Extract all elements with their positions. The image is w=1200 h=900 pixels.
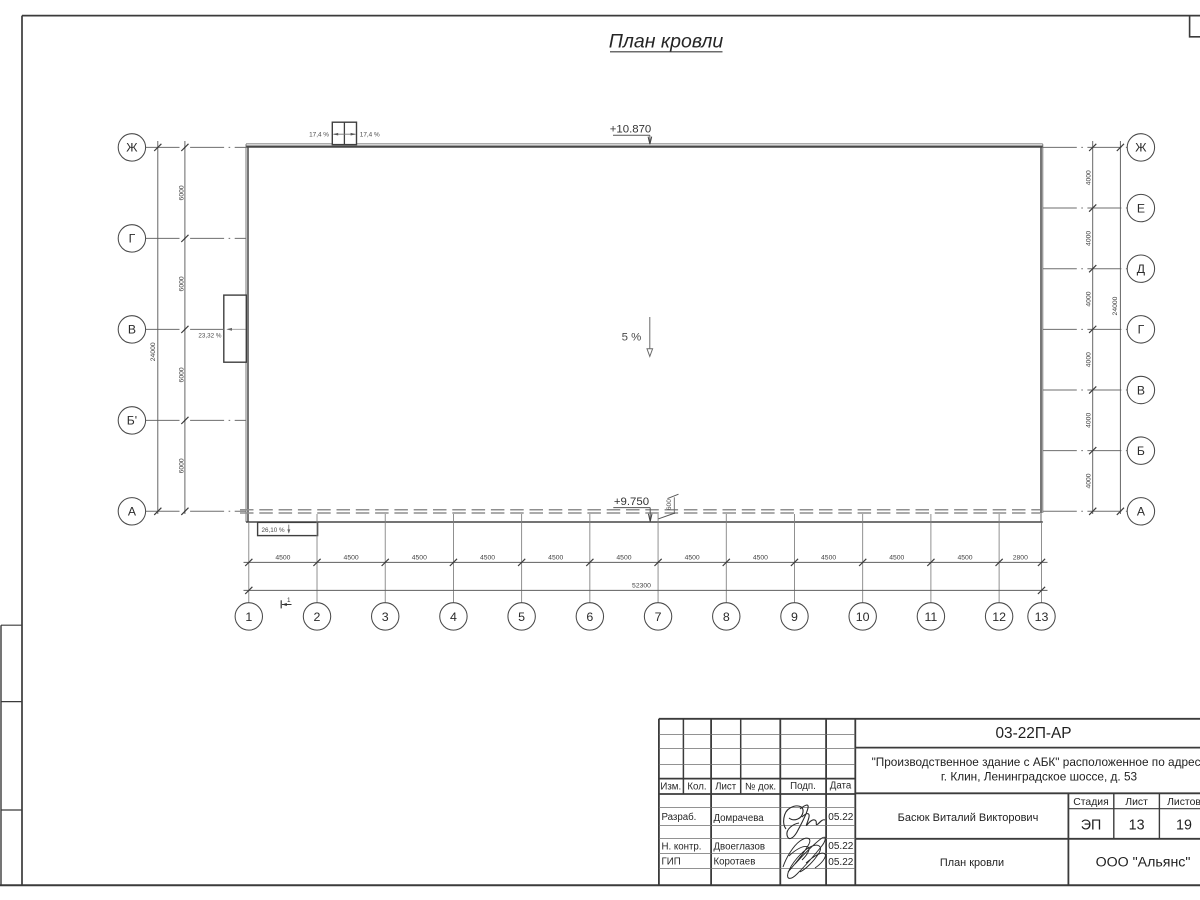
svg-text:4000: 4000 — [1086, 413, 1093, 428]
svg-text:24000: 24000 — [1112, 296, 1119, 315]
svg-text:11: 11 — [924, 610, 937, 624]
svg-text:6000: 6000 — [178, 367, 185, 382]
svg-text:17,4 %: 17,4 % — [360, 132, 380, 139]
svg-text:Двоеглазов: Двоеглазов — [714, 841, 766, 852]
svg-text:4500: 4500 — [480, 554, 495, 561]
svg-text:4000: 4000 — [1086, 352, 1093, 367]
svg-text:8: 8 — [723, 610, 730, 624]
svg-text:Лист: Лист — [715, 781, 737, 792]
svg-text:4500: 4500 — [344, 554, 359, 561]
svg-text:А: А — [1137, 505, 1146, 519]
svg-text:600: 600 — [666, 499, 673, 510]
svg-text:Лист: Лист — [1125, 797, 1148, 808]
svg-text:4500: 4500 — [889, 554, 904, 561]
svg-text:1: 1 — [245, 610, 252, 624]
svg-text:2: 2 — [314, 610, 321, 624]
svg-text:4500: 4500 — [548, 554, 563, 561]
svg-text:13: 13 — [1035, 610, 1049, 624]
svg-text:05.22: 05.22 — [828, 841, 853, 852]
svg-text:6000: 6000 — [178, 276, 185, 291]
svg-text:4000: 4000 — [1086, 170, 1093, 185]
svg-text:Г: Г — [129, 232, 136, 246]
svg-text:Ж: Ж — [126, 141, 138, 155]
svg-text:4: 4 — [450, 610, 457, 624]
svg-text:Б: Б — [1137, 444, 1145, 458]
svg-text:4000: 4000 — [1086, 291, 1093, 306]
svg-text:5 %: 5 % — [622, 332, 642, 344]
svg-text:Изм.: Изм. — [660, 781, 681, 792]
svg-text:03-22П-АР: 03-22П-АР — [995, 725, 1071, 742]
svg-text:6000: 6000 — [178, 458, 185, 473]
svg-text:Коротаев: Коротаев — [714, 856, 756, 867]
svg-text:Дата: Дата — [830, 780, 852, 791]
svg-text:24000: 24000 — [150, 342, 157, 361]
svg-text:В: В — [1137, 383, 1145, 397]
svg-text:6000: 6000 — [178, 185, 185, 200]
svg-text:4500: 4500 — [753, 554, 768, 561]
svg-text:Д: Д — [1137, 262, 1146, 276]
svg-text:г. Клин, Ленинградское шоссе,: г. Клин, Ленинградское шоссе, д. 53 — [941, 769, 1138, 783]
svg-text:19: 19 — [1176, 818, 1192, 834]
svg-text:4500: 4500 — [616, 554, 631, 561]
svg-text:Разраб.: Разраб. — [662, 812, 697, 823]
svg-text:Ж: Ж — [1135, 141, 1147, 155]
svg-text:26,10 %: 26,10 % — [262, 527, 286, 534]
svg-text:ГИП: ГИП — [662, 856, 681, 867]
svg-text:10: 10 — [856, 610, 870, 624]
svg-text:9: 9 — [791, 610, 798, 624]
svg-text:План кровли: План кровли — [940, 857, 1004, 869]
svg-text:4500: 4500 — [821, 554, 836, 561]
svg-text:"Производственное здание с АБК: "Производственное здание с АБК" располож… — [872, 755, 1200, 769]
svg-text:Домрачева: Домрачева — [714, 813, 765, 824]
svg-text:+9.750: +9.750 — [614, 496, 649, 508]
svg-text:5: 5 — [518, 610, 525, 624]
svg-text:Е: Е — [1137, 201, 1145, 215]
svg-text:6: 6 — [586, 610, 593, 624]
svg-text:ЭП: ЭП — [1081, 818, 1102, 834]
svg-text:4500: 4500 — [412, 554, 427, 561]
svg-text:План кровли: План кровли — [609, 30, 724, 52]
svg-text:17,4 %: 17,4 % — [309, 132, 329, 139]
svg-text:2800: 2800 — [1013, 554, 1028, 561]
svg-text:4500: 4500 — [685, 554, 700, 561]
svg-text:А: А — [128, 505, 137, 519]
svg-text:№ док.: № док. — [745, 781, 776, 792]
svg-text:4000: 4000 — [1086, 473, 1093, 488]
svg-text:Б': Б' — [127, 414, 137, 428]
svg-text:05.22: 05.22 — [828, 812, 853, 823]
svg-text:05.22: 05.22 — [828, 857, 853, 868]
svg-text:12: 12 — [992, 610, 1006, 624]
svg-text:4000: 4000 — [1086, 231, 1093, 246]
svg-text:ООО "Альянс": ООО "Альянс" — [1096, 855, 1191, 871]
svg-text:7: 7 — [655, 610, 662, 624]
svg-text:13: 13 — [1129, 818, 1145, 834]
svg-text:52300: 52300 — [632, 583, 651, 590]
svg-text:Н. контр.: Н. контр. — [662, 841, 702, 852]
svg-text:Г: Г — [1138, 323, 1145, 337]
svg-text:4500: 4500 — [957, 554, 972, 561]
svg-text:4500: 4500 — [275, 554, 290, 561]
svg-text:Кол.: Кол. — [687, 781, 706, 792]
svg-text:Листов: Листов — [1167, 797, 1200, 808]
svg-text:В: В — [128, 323, 136, 337]
svg-text:23,32 %: 23,32 % — [198, 333, 222, 340]
svg-text:Стадия: Стадия — [1073, 797, 1108, 808]
svg-text:1: 1 — [287, 597, 291, 604]
svg-text:Подп.: Подп. — [790, 781, 816, 792]
svg-text:3: 3 — [382, 610, 389, 624]
svg-text:Басюк Виталий Викторович: Басюк Виталий Викторович — [898, 812, 1039, 824]
svg-text:+10.870: +10.870 — [610, 124, 652, 136]
